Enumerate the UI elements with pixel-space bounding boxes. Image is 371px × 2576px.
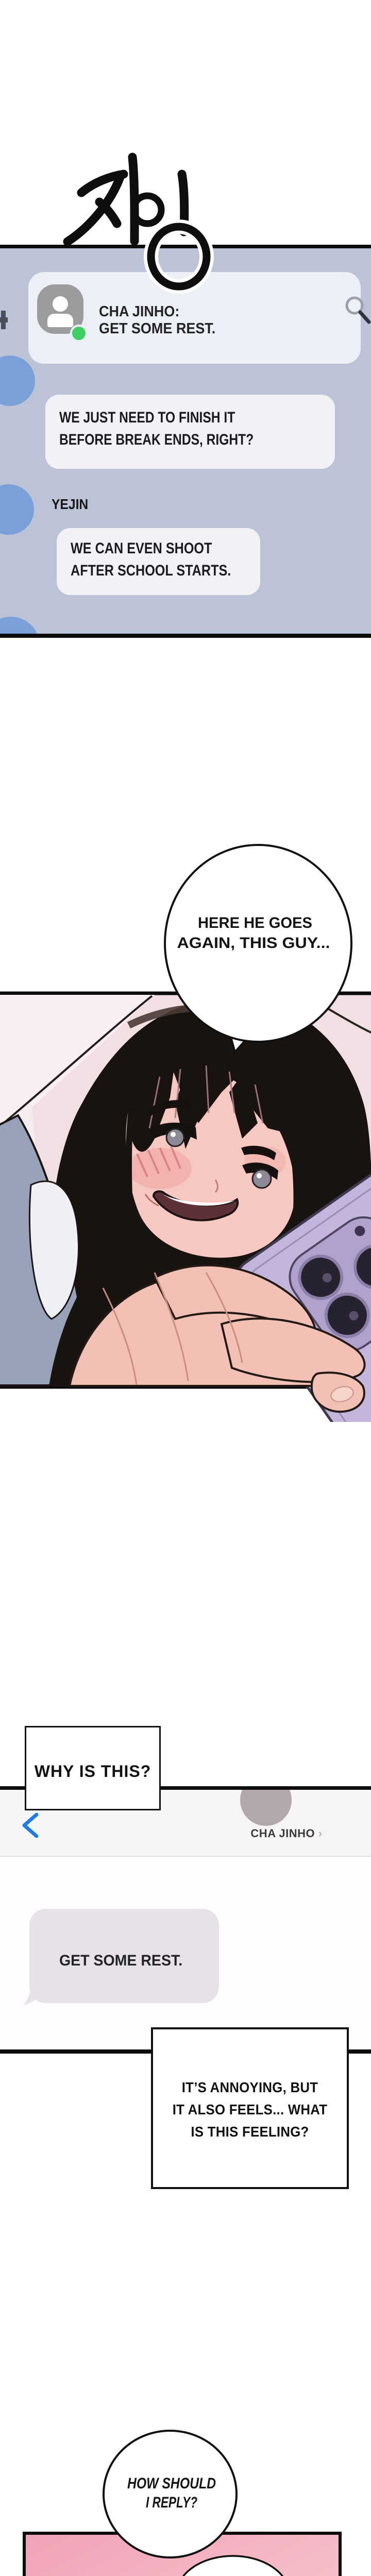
- svg-text:AGAIN, THIS GUY...: AGAIN, THIS GUY...: [177, 935, 330, 952]
- svg-text:HERE HE GOES: HERE HE GOES: [198, 914, 312, 931]
- svg-text:HOW SHOULD: HOW SHOULD: [127, 2475, 216, 2492]
- svg-text:I REPLY?: I REPLY?: [146, 2494, 197, 2511]
